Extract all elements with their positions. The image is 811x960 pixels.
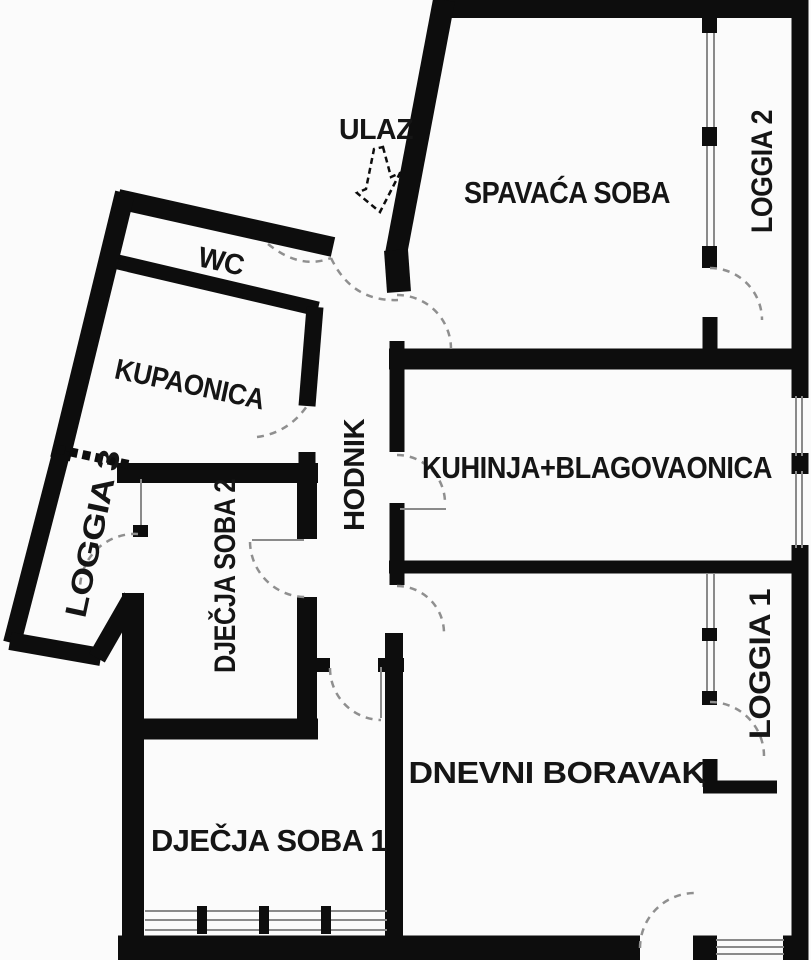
entrance-arrow-icon xyxy=(357,147,400,212)
window-loggia1-cap-mid xyxy=(702,628,717,641)
window-loggia2-cap-top xyxy=(702,13,717,33)
door-arc-loggia2 xyxy=(710,268,762,320)
wall-loggia3-south xyxy=(10,641,101,657)
room-label-kupaonica: KUPAONICA xyxy=(112,354,268,417)
window-loggia2-cap-mid xyxy=(702,127,717,146)
wall-loggia3-west xyxy=(12,450,62,643)
room-label-loggia-2: LOGGIA 2 xyxy=(746,110,779,233)
door-arc-spavaca-soba xyxy=(397,295,451,349)
floor-plan: ULAZ SPAVAĆA SOBA LOGGIA 2 WC KUPAONICA … xyxy=(0,0,811,960)
window-loggia3-cap-top xyxy=(133,467,148,479)
room-label-loggia-1: LOGGIA 1 xyxy=(744,589,777,739)
window-djecja1-mullion-3 xyxy=(321,906,331,934)
window-loggia2-cap-bottom xyxy=(702,246,717,268)
wall-west-exterior-upper xyxy=(60,193,125,459)
wall-wc-top xyxy=(118,199,333,247)
room-label-djecja-soba-1: DJEČJA SOBA 1 xyxy=(151,822,387,858)
wall-entry-jamb xyxy=(396,250,399,292)
door-arc-hall-to-djecja1 xyxy=(330,668,381,720)
window-loggia3-cap-bottom xyxy=(133,525,148,537)
window-djecja1-mullion-1 xyxy=(197,906,207,934)
room-label-hodnik: HODNIK xyxy=(339,418,371,531)
window-djecja1-mullion-2 xyxy=(259,906,269,934)
room-label-dnevni-boravak: DNEVNI BORAVAK xyxy=(409,755,707,790)
room-label-djecja-soba-2: DJEČJA SOBA 2 xyxy=(208,479,242,673)
room-labels: ULAZ SPAVAĆA SOBA LOGGIA 2 WC KUPAONICA … xyxy=(60,110,779,858)
room-label-loggia-3: LOGGIA 3 xyxy=(60,447,128,620)
room-label-ulaz: ULAZ xyxy=(339,114,413,146)
door-arc-kupaonica xyxy=(257,406,307,437)
door-arc-hall-to-dnevni xyxy=(397,586,444,633)
door-arc-djecja2 xyxy=(250,542,307,597)
wall-kupaonica-east xyxy=(307,307,315,406)
room-label-kuhinja-blagovaonica: KUHINJA+BLAGOVAONICA xyxy=(422,450,772,485)
room-label-spavaca-soba: SPAVAĆA SOBA xyxy=(464,174,670,210)
door-arc-balcony xyxy=(640,893,695,948)
